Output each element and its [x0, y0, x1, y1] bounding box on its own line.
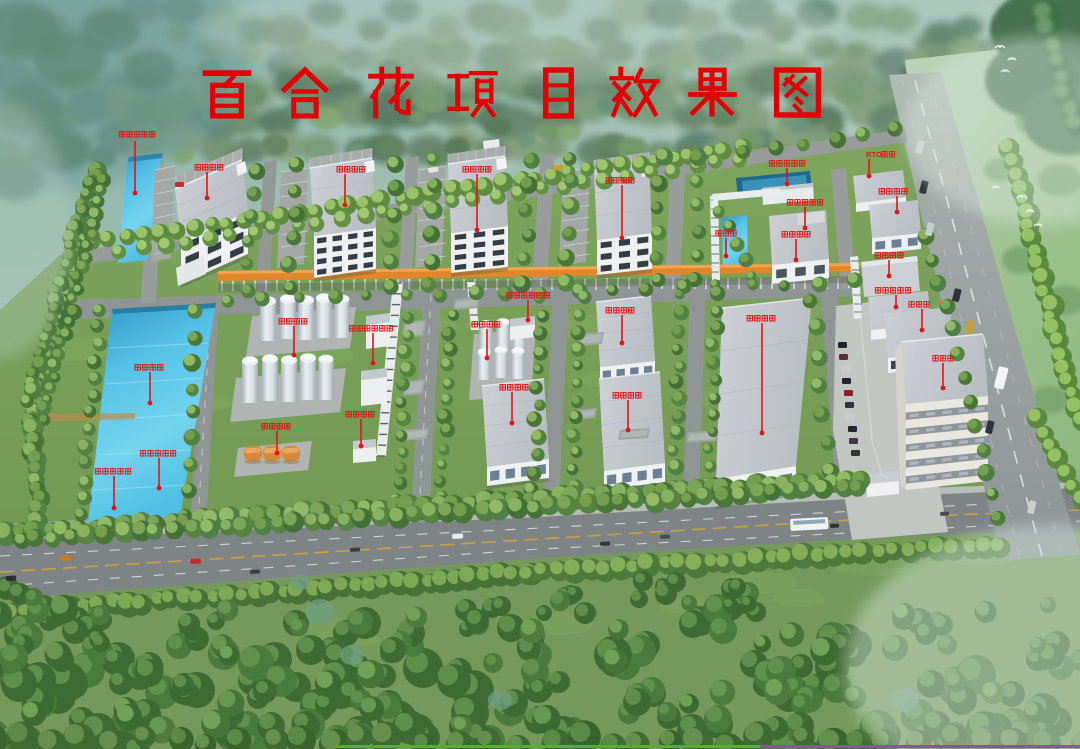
- svg-text:RTO: RTO: [866, 150, 882, 159]
